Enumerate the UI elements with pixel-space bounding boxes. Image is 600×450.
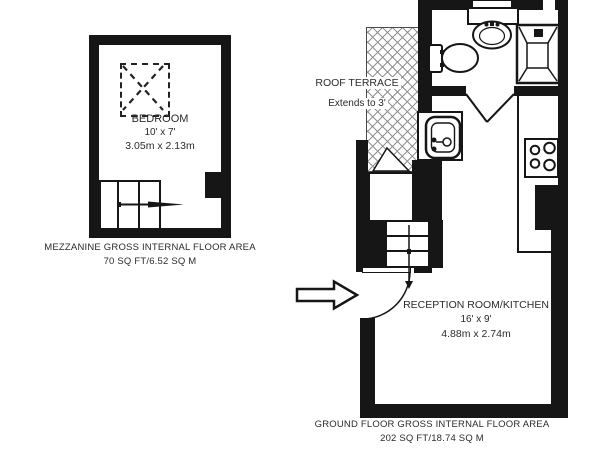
reception-size-metric: 4.88m x 2.74m <box>386 328 566 341</box>
wall-stairs-left <box>368 220 385 267</box>
entrance-door-leaf <box>362 267 411 273</box>
kitchen-counter-end <box>517 251 553 253</box>
wall-stairs-right <box>430 220 443 268</box>
stair-tread-line <box>138 182 140 228</box>
wall-bottom <box>360 404 568 418</box>
entrance-arrow-icon <box>297 282 357 309</box>
shower-icon <box>517 25 559 83</box>
hob-icon <box>525 139 558 177</box>
reception-size-imperial: 16' x 9' <box>386 314 566 327</box>
ground-stairs-icon <box>385 220 430 268</box>
wall-left-mid <box>356 140 368 272</box>
mezzanine-stairs-icon <box>99 180 161 230</box>
reception-room-label: RECEPTION ROOM/KITCHEN <box>386 299 566 312</box>
stair-tread-line <box>387 250 428 252</box>
mezzanine-room-label: BEDROOM <box>100 113 220 127</box>
roof-terrace-note: Extends to 3' <box>326 98 388 109</box>
wall-notch <box>205 172 222 198</box>
wall-bathroom-bottom-right <box>514 86 562 96</box>
roof-terrace-name: ROOF TERRACE <box>313 77 400 89</box>
wall-bathroom-bottom-left <box>430 86 466 96</box>
vestibule <box>368 172 414 222</box>
bathroom-window <box>543 0 555 10</box>
mezzanine-room-size-metric: 3.05m x 2.13m <box>100 140 220 153</box>
kitchen-counter-edge <box>517 96 519 253</box>
skylight-icon <box>120 63 170 117</box>
stair-tread-line <box>117 182 119 228</box>
wall-left-bathroom <box>418 0 432 114</box>
kitchen-sink-icon <box>418 112 462 160</box>
wall-left-lower <box>360 318 375 418</box>
ground-caption-line2: 202 SQ FT/18.74 SQ M <box>282 433 582 445</box>
mezzanine-room-size-imperial: 10' x 7' <box>100 127 220 140</box>
wall-right-block <box>535 185 568 230</box>
mezzanine-caption-line2: 70 SQ FT/6.52 SQ M <box>30 256 270 268</box>
floorplan-page: BEDROOM 10' x 7' 3.05m x 2.13m MEZZANINE… <box>0 0 600 450</box>
roof-terrace-label: ROOF TERRACE Extends to 3' <box>305 72 409 112</box>
toilet-icon <box>429 44 478 72</box>
wall-sink-block <box>412 160 442 222</box>
ground-caption-line1: GROUND FLOOR GROSS INTERNAL FLOOR AREA <box>282 419 582 431</box>
mezzanine-caption-line1: MEZZANINE GROSS INTERNAL FLOOR AREA <box>30 242 270 254</box>
bathroom-door-icon <box>466 94 514 122</box>
stair-tread-line <box>387 235 428 237</box>
